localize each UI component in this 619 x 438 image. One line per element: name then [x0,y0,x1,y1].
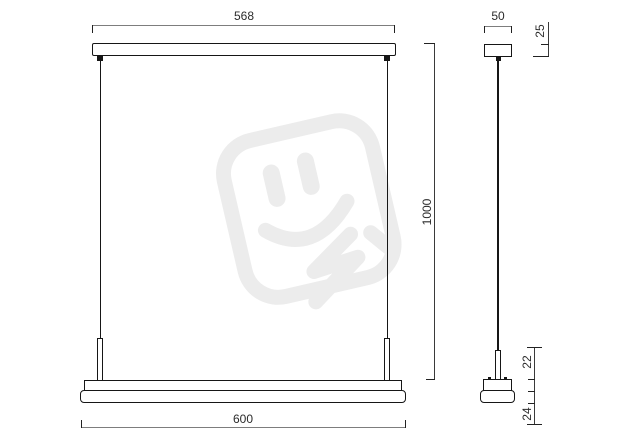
front-suspension-cable-right [387,61,389,338]
dim-label-50: 50 [483,9,513,23]
dim-tick [484,26,485,33]
dim-line-22-24 [534,347,535,425]
dim-line-600 [81,427,406,428]
side-body-lower [480,390,515,403]
front-suspension-cable-left [100,61,102,338]
dim-label-24: 24 [520,400,534,428]
dim-tick [528,379,535,380]
dim-tick [92,25,93,33]
dim-line-50 [484,26,512,27]
dim-label-568: 568 [200,9,288,23]
dim-label-1000: 1000 [420,192,434,232]
front-body-lower [80,390,406,403]
front-adjuster-tube-left [97,338,103,381]
dim-label-25: 25 [533,17,547,45]
side-suspension-cable [497,61,499,350]
front-canopy-bar [92,43,396,56]
dim-tick [424,43,435,44]
front-adjuster-tube-right [384,338,390,381]
dim-line-568 [92,25,395,26]
side-adjuster-tube [495,350,501,380]
drawing-canvas: 568 600 1000 50 25 22 24 [0,0,619,438]
dim-tick [426,379,435,380]
dim-tick [528,391,535,392]
dim-tick [394,25,395,33]
dim-tick [405,420,406,428]
dim-line-1000 [434,43,435,380]
dim-line-25 [548,22,549,57]
plug-smiley-watermark-icon [198,96,430,348]
dim-label-22: 22 [520,348,534,376]
dim-label-600: 600 [199,412,287,426]
dim-tick [511,26,512,33]
dim-tick [81,420,82,428]
dim-tick [533,56,549,57]
